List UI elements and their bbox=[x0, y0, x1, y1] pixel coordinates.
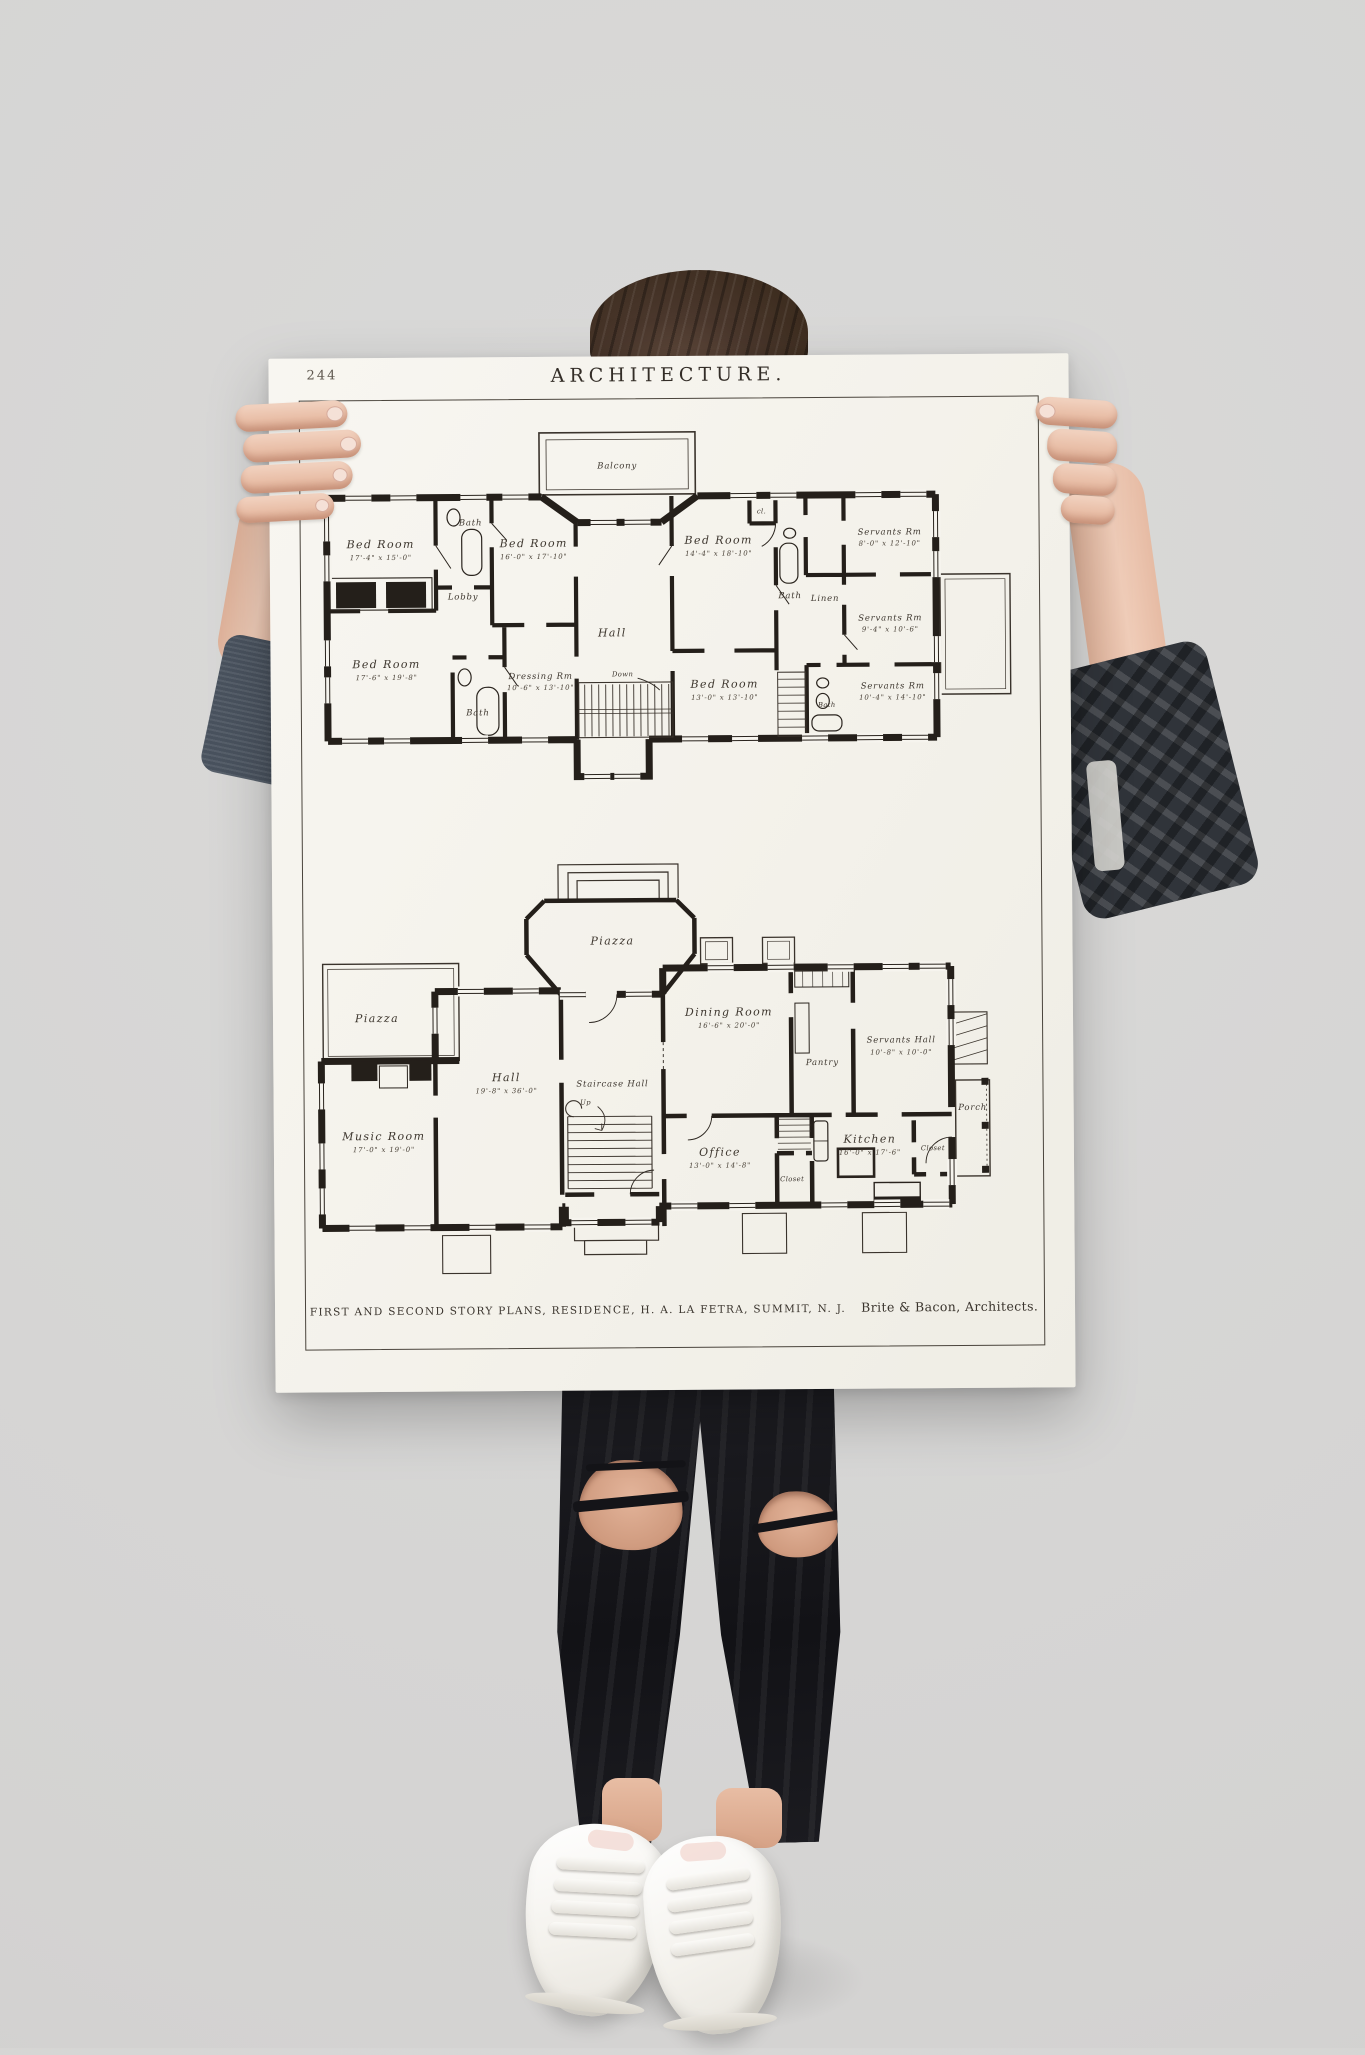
back-staircase bbox=[778, 672, 806, 736]
room-label-bed-room-sw: Bed Room bbox=[351, 658, 420, 671]
room-label-piazza-side: Piazza bbox=[354, 1012, 399, 1025]
room-label-music: Music Room bbox=[341, 1130, 425, 1144]
interior-walls bbox=[326, 494, 937, 741]
right-leg-jeans bbox=[696, 1376, 850, 1845]
room-label-hall2: Hall bbox=[597, 626, 627, 639]
main-staircase bbox=[579, 682, 673, 738]
room-label-closet-kitchen: Closet bbox=[921, 1144, 945, 1152]
room-dims-dressing: 10'-6" x 13'-10" bbox=[507, 684, 574, 692]
caption-credit: Brite & Bacon, Architects. bbox=[861, 1298, 1038, 1314]
room-dims-servants-hall: 10'-8" x 10'-0" bbox=[870, 1048, 932, 1056]
room-dims-office: 13'-0" x 14'-8" bbox=[689, 1161, 751, 1169]
room-dims-hall1: 19'-8" x 36'-0" bbox=[475, 1087, 537, 1095]
right-hand bbox=[1025, 392, 1159, 535]
room-label-dining: Dining Room bbox=[684, 1005, 773, 1019]
room-label-closet-hall: Closet bbox=[780, 1175, 804, 1183]
room-label-kitchen: Kitchen bbox=[842, 1132, 896, 1145]
room-label-office: Office bbox=[699, 1146, 741, 1159]
room-dims-servants-ne: 8'-0" x 12'-10" bbox=[859, 539, 921, 547]
room-label-bath-sw: Bath bbox=[465, 708, 489, 718]
page-title: ARCHITECTURE. bbox=[268, 361, 1068, 389]
room-label-linen: Linen bbox=[810, 594, 839, 604]
room-dims-servants-se: 10'-4" x 14'-10" bbox=[859, 693, 926, 701]
room-dims-bed-room-n: 16'-0" x 17'-10" bbox=[500, 553, 567, 561]
room-dims-bed-room-s: 13'-0" x 13'-10" bbox=[691, 693, 758, 701]
room-label-hall1: Hall bbox=[491, 1071, 521, 1084]
room-label-bath-nw: Bath bbox=[458, 518, 482, 528]
closet-poche bbox=[330, 578, 432, 611]
room-dims-kitchen: 16'-0" x 17'-6" bbox=[839, 1148, 901, 1156]
room-label-porch: Porch bbox=[957, 1103, 987, 1113]
architecture-poster: 244 ARCHITECTURE. bbox=[268, 353, 1075, 1393]
room-label-servants-e: Servants Rm bbox=[858, 613, 922, 623]
first-story-plan: Piazza Piazza Dining Room 16'-6" x 20'-0… bbox=[320, 852, 1023, 1287]
room-label-dressing: Dressing Rm bbox=[507, 672, 572, 682]
left-leg-jeans bbox=[546, 1376, 704, 1845]
room-label-lobby: Lobby bbox=[447, 592, 479, 602]
second-story-plan: Balcony Bed Room 17'-4" x 15'-0" Bath Be… bbox=[323, 424, 1026, 794]
room-dims-dining: 16'-6" x 20'-0" bbox=[698, 1021, 760, 1029]
room-label-closet: cl. bbox=[757, 507, 766, 515]
room-dims-bed-room-sw: 17'-6" x 19'-8" bbox=[356, 674, 418, 682]
exterior-walls-1 bbox=[321, 966, 953, 1228]
back-stairs-1 bbox=[778, 1119, 811, 1149]
room-dims-bed-room-nw: 17'-4" x 15'-0" bbox=[350, 554, 412, 562]
room-label-bed-room-nw: Bed Room bbox=[346, 538, 415, 551]
room-label-servants-ne: Servants Rm bbox=[858, 527, 922, 537]
room-label-bath-se: Bath bbox=[817, 701, 836, 709]
room-label-bed-room-ne: Bed Room bbox=[683, 533, 752, 546]
room-label-bed-room-n: Bed Room bbox=[499, 537, 568, 550]
room-dims-bed-room-ne: 14'-4" x 18'-10" bbox=[685, 549, 752, 557]
room-label-servants-se: Servants Rm bbox=[861, 681, 925, 691]
fireplace-poche bbox=[351, 1061, 431, 1089]
left-hand bbox=[235, 399, 371, 531]
stair-label-down: Down bbox=[611, 670, 633, 678]
room-label-bath-ne: Bath bbox=[777, 591, 801, 601]
room-label-staircase-hall: Staircase Hall bbox=[576, 1079, 648, 1090]
room-dims-music: 17'-0" x 19'-0" bbox=[353, 1146, 415, 1154]
room-dims-servants-e: 9'-4" x 10'-6" bbox=[862, 625, 919, 633]
room-label-servants-hall: Servants Hall bbox=[867, 1035, 936, 1045]
caption-text: FIRST AND SECOND STORY PLANS, RESIDENCE,… bbox=[310, 1303, 846, 1319]
room-label-piazza-front: Piazza bbox=[589, 934, 634, 947]
room-label-pantry: Pantry bbox=[805, 1058, 839, 1068]
stair-label-up: Up bbox=[580, 1099, 591, 1107]
room-label-bed-room-s: Bed Room bbox=[689, 677, 758, 690]
room-label-balcony: Balcony bbox=[596, 461, 637, 471]
